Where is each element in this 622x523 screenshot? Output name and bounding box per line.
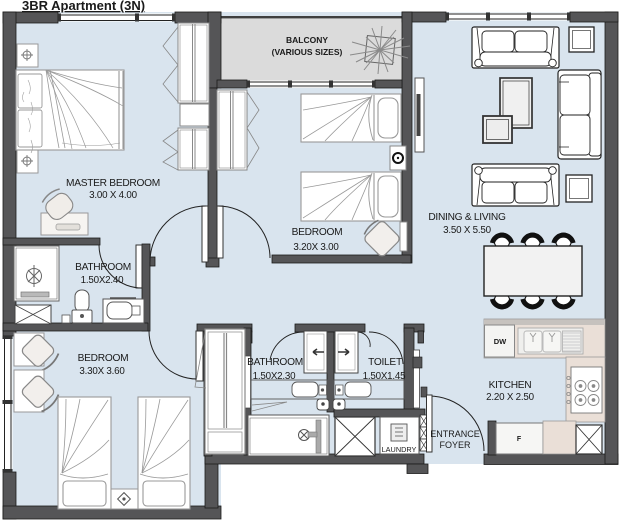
svg-text:3.50 X 5.50: 3.50 X 5.50 <box>443 225 491 236</box>
svg-text:BALCONY: BALCONY <box>286 35 328 45</box>
svg-text:LAUNDRY: LAUNDRY <box>382 445 417 454</box>
svg-text:3.20X 3.00: 3.20X 3.00 <box>293 242 339 253</box>
svg-text:FOYER: FOYER <box>439 440 471 450</box>
svg-text:BEDROOM: BEDROOM <box>78 353 129 364</box>
svg-text:ENTRANCE: ENTRANCE <box>430 429 480 439</box>
svg-text:3.00 X 4.00: 3.00 X 4.00 <box>89 190 137 201</box>
svg-text:KITCHEN: KITCHEN <box>489 380 532 391</box>
svg-text:F: F <box>517 436 522 443</box>
svg-text:1.50X1.45: 1.50X1.45 <box>363 371 406 382</box>
svg-text:DINING & LIVING: DINING & LIVING <box>428 212 506 223</box>
svg-text:2.20 X 2.50: 2.20 X 2.50 <box>486 392 534 403</box>
svg-text:3BR Apartment (3N): 3BR Apartment (3N) <box>22 0 145 13</box>
svg-text:MASTER BEDROOM: MASTER BEDROOM <box>66 178 160 189</box>
svg-text:BEDROOM: BEDROOM <box>292 227 343 238</box>
svg-text:3.30X 3.60: 3.30X 3.60 <box>79 366 125 377</box>
svg-text:1.50X2.40: 1.50X2.40 <box>81 275 124 286</box>
svg-text:BATHROOM: BATHROOM <box>247 357 303 368</box>
svg-text:TOILET: TOILET <box>368 357 402 368</box>
svg-text:(VARIOUS SIZES): (VARIOUS SIZES) <box>272 47 343 57</box>
svg-text:DW: DW <box>494 337 507 346</box>
svg-text:BATHROOM: BATHROOM <box>75 262 131 273</box>
svg-text:1.50X2.30: 1.50X2.30 <box>253 371 296 382</box>
